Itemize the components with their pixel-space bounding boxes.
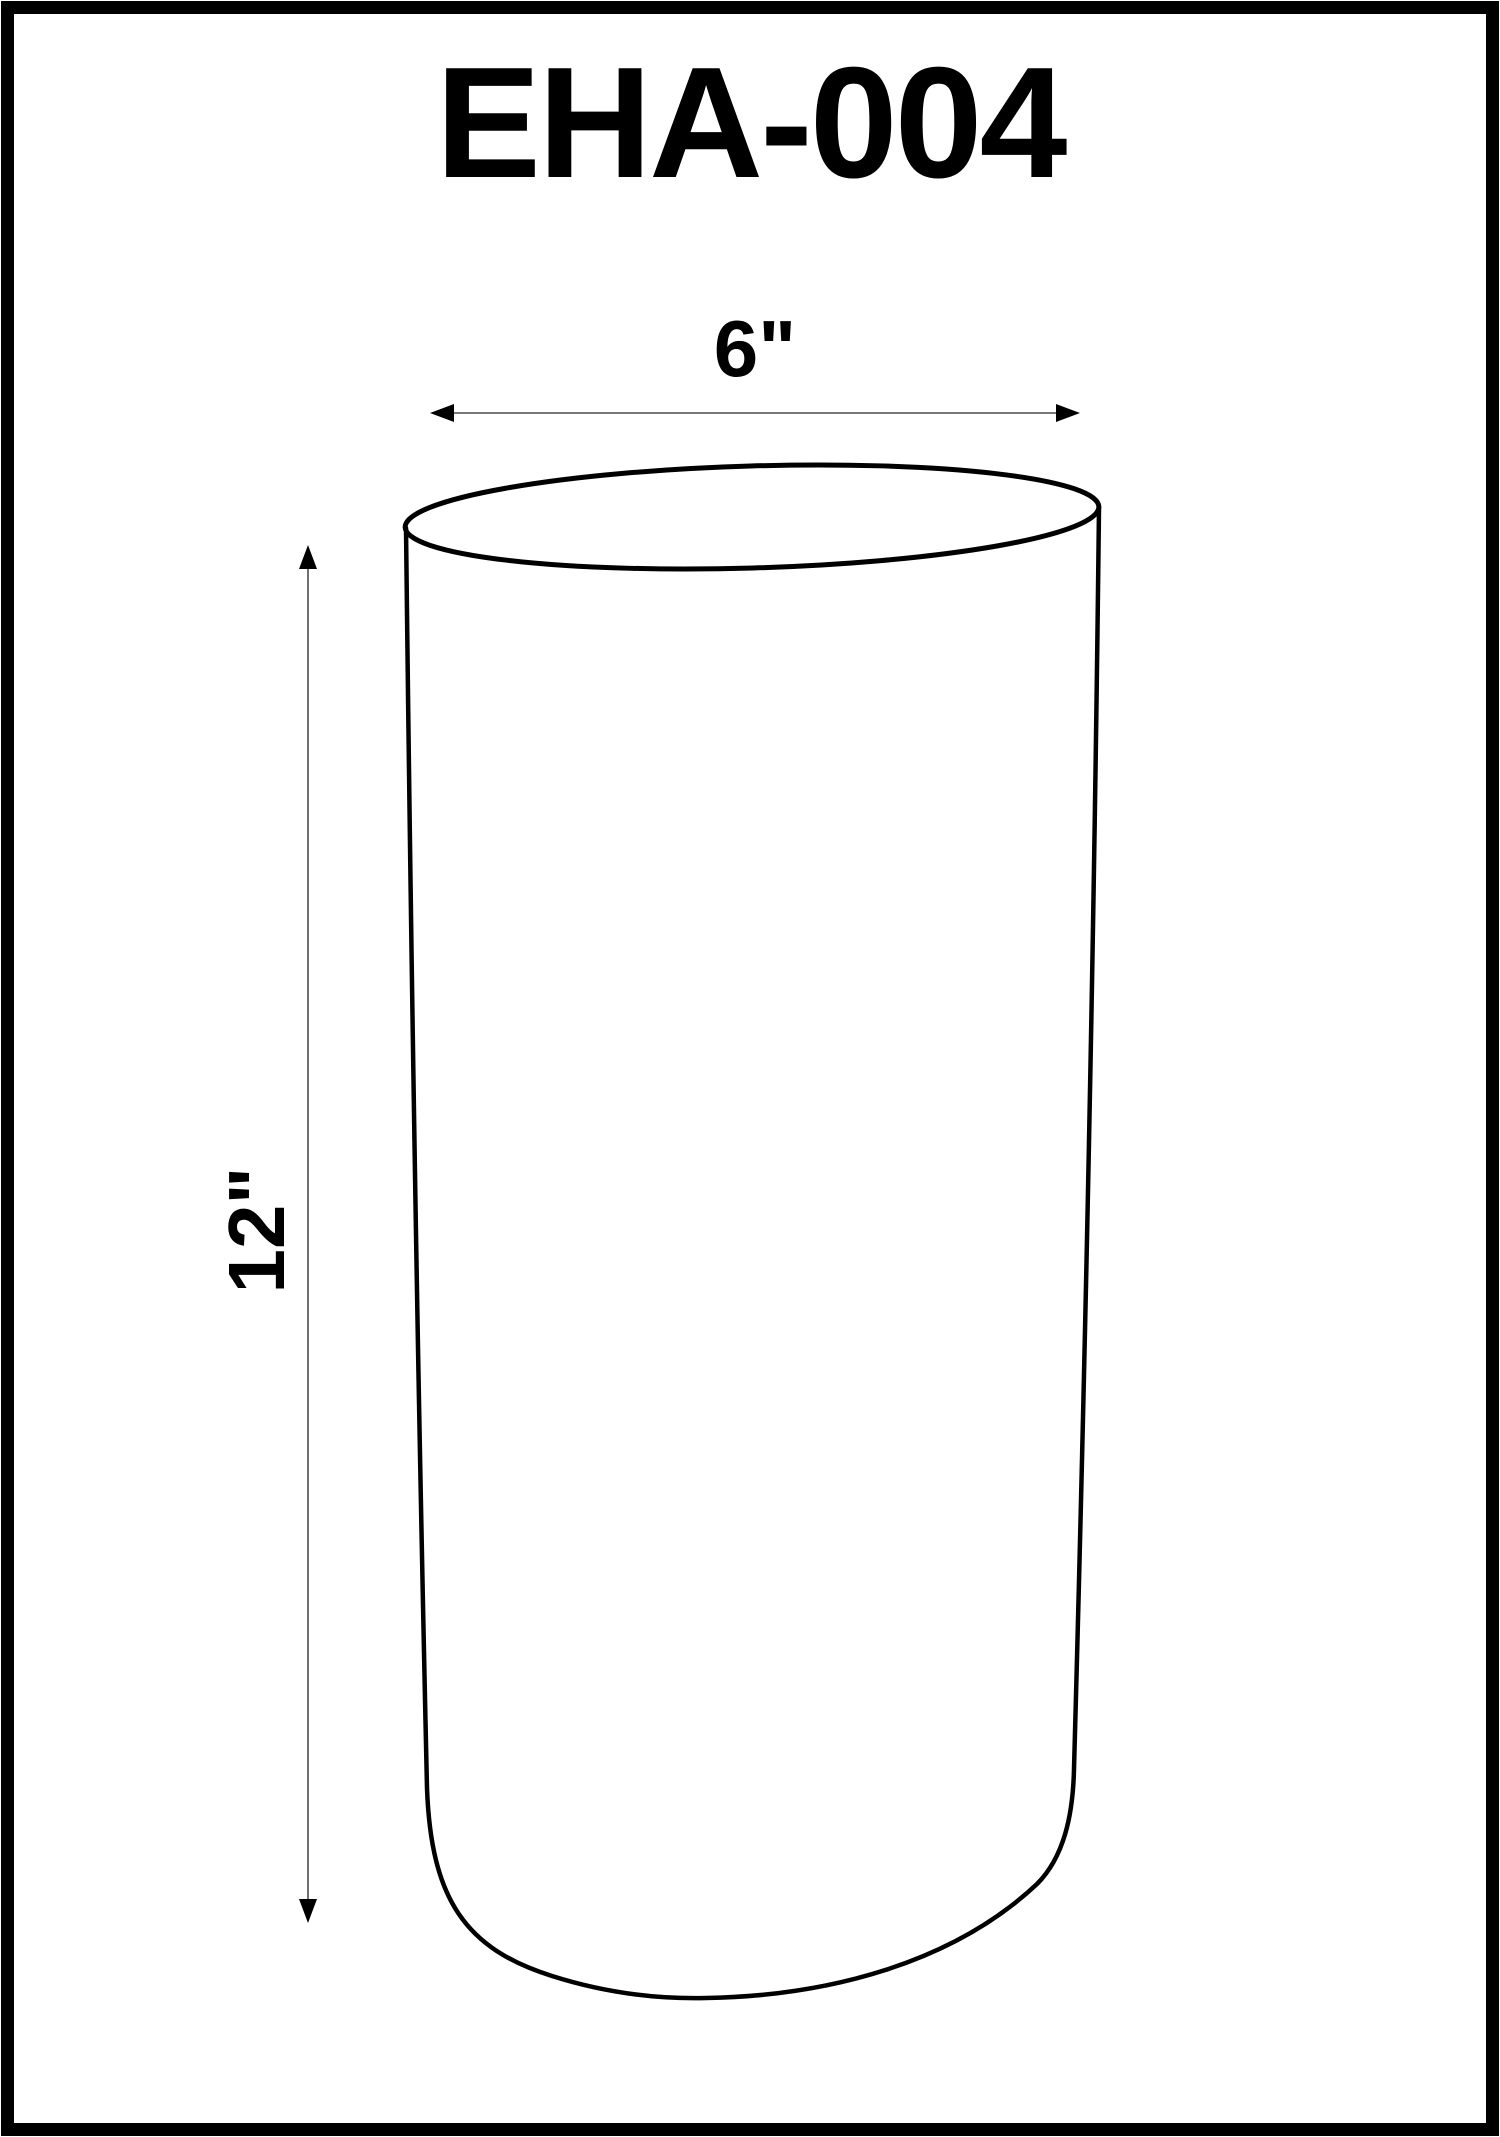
cylinder-body-outline <box>406 508 1099 1998</box>
arrowhead-up-icon <box>299 545 317 569</box>
cylinder-outline <box>404 456 1101 1998</box>
arrowhead-right-icon <box>1056 404 1080 422</box>
arrowhead-down-icon <box>299 1899 317 1923</box>
width-dimension-arrow <box>430 404 1080 422</box>
arrowhead-left-icon <box>430 404 454 422</box>
drawing-sheet: EHA-004 6" 12" <box>0 0 1500 2137</box>
cylinder-top-ellipse <box>404 456 1101 579</box>
cylinder-drawing <box>0 0 1500 2137</box>
height-dimension-arrow <box>299 545 317 1923</box>
